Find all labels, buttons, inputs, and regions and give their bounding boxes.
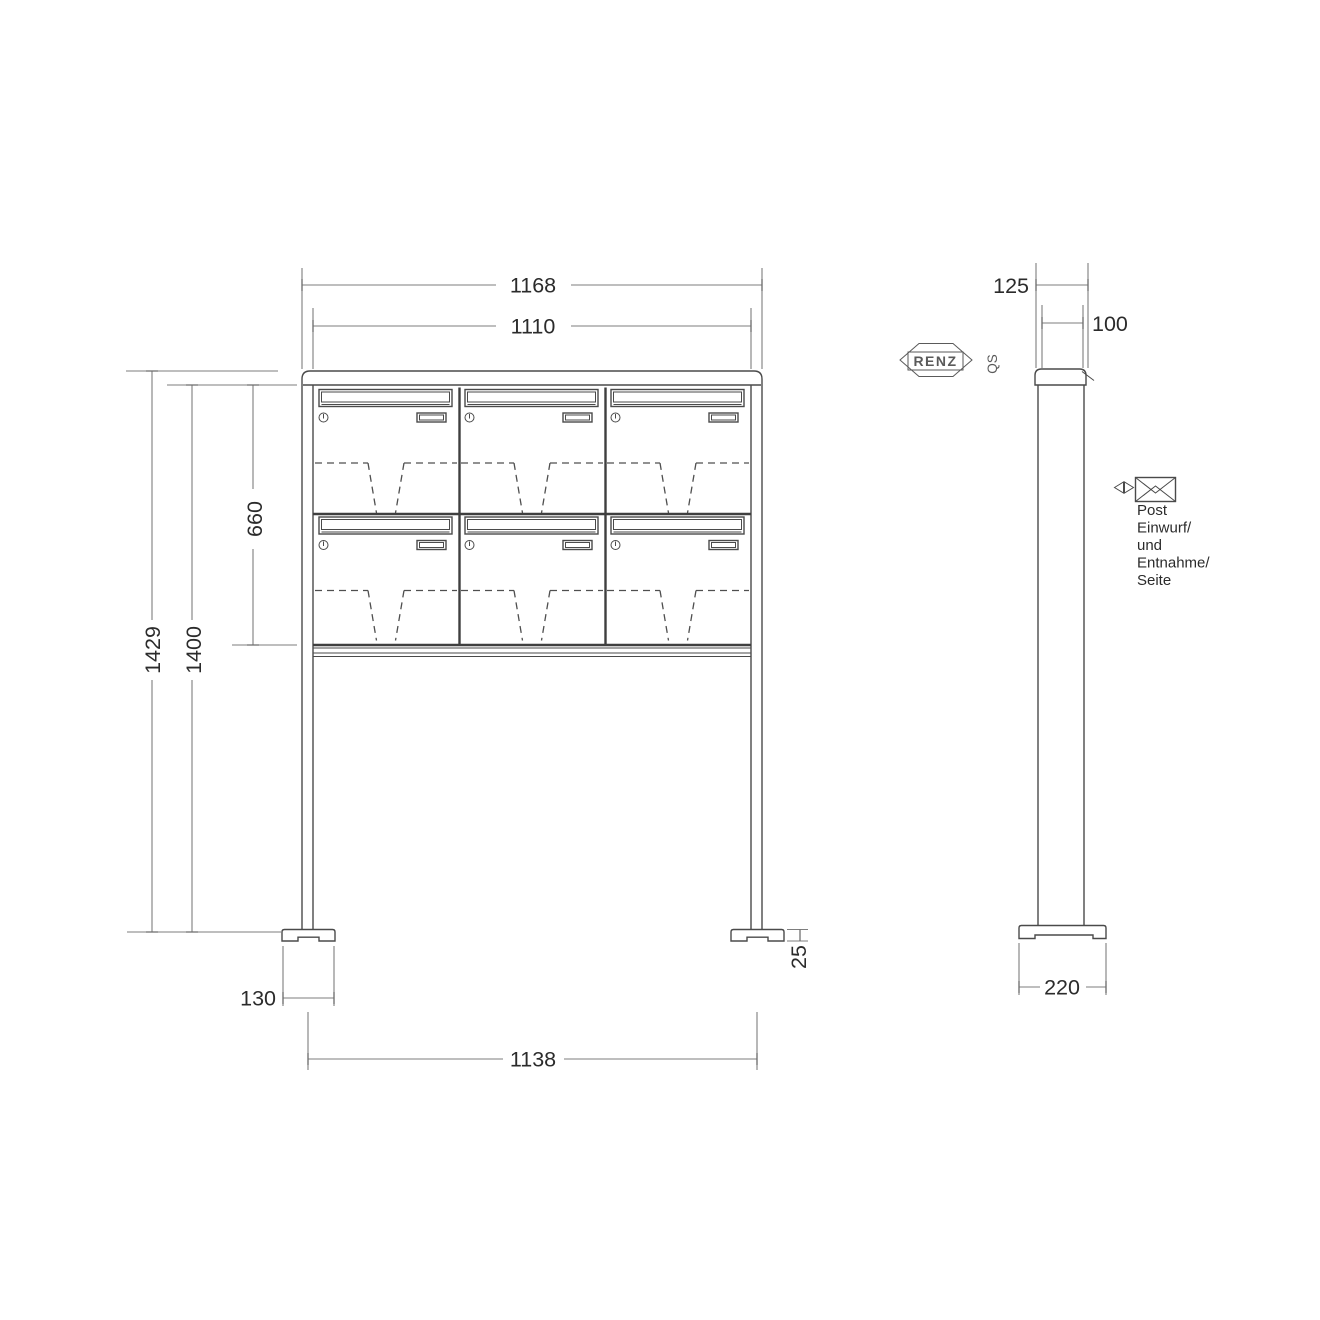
mailbox-cabinet xyxy=(313,388,751,657)
note-line-1: Post xyxy=(1137,502,1168,519)
dim-post-spacing-label: 1138 xyxy=(510,1048,556,1072)
dim-box-depth-label: 100 xyxy=(1092,312,1128,336)
renz-logo-text: RENZ xyxy=(913,353,957,369)
stand-frame xyxy=(302,371,762,930)
dim-foot-height-label: 25 xyxy=(787,945,811,969)
post-side xyxy=(1038,385,1084,926)
left-right-arrows-icon xyxy=(1115,482,1134,493)
dimension-cabinet-height: 660 xyxy=(243,385,267,645)
qs-label: QS xyxy=(985,354,1000,374)
mailbox-unit xyxy=(461,390,603,514)
envelope-icon xyxy=(1136,478,1176,502)
dim-frame-depth-label: 125 xyxy=(993,274,1029,298)
dim-stand-height-label: 1400 xyxy=(182,626,206,674)
note-line-5: Seite xyxy=(1137,572,1171,589)
mailbox-unit xyxy=(315,390,457,514)
brand-mark: RENZ QS xyxy=(900,344,1000,377)
note-line-3: und xyxy=(1137,537,1162,554)
post-cap-side xyxy=(1035,369,1094,385)
mailbox-unit xyxy=(315,517,457,641)
dimension-foot-width: 130 xyxy=(240,946,334,1011)
mailbox-unit xyxy=(607,517,749,641)
dim-total-height-label: 1429 xyxy=(141,626,165,674)
side-view: 125 100 220 xyxy=(993,263,1128,1000)
dim-cabinet-height-label: 660 xyxy=(243,501,267,537)
dim-inner-width-label: 1110 xyxy=(511,315,556,339)
dim-foot-width-label: 130 xyxy=(240,987,276,1011)
dim-outer-width-label: 1168 xyxy=(510,274,556,298)
note-line-4: Entnahme/ xyxy=(1137,555,1210,572)
foot-plate-side xyxy=(1019,926,1106,939)
technical-drawing-page: 1168 1110 1429 xyxy=(0,0,1320,1320)
dimension-frame-depth: 125 xyxy=(993,274,1088,298)
mailbox-unit xyxy=(461,517,603,641)
dimension-total-height: 1429 xyxy=(141,371,165,932)
dim-foot-depth-label: 220 xyxy=(1044,976,1080,1000)
dimension-inner-width: 1110 xyxy=(313,308,751,369)
dimension-foot-height: 25 xyxy=(787,930,811,969)
post-slot-annotation: Post Einwurf/ und Entnahme/ Seite xyxy=(1115,478,1211,590)
front-view: 1168 1110 1429 xyxy=(126,268,811,1072)
mailbox-unit xyxy=(607,390,749,514)
foot-plates-front xyxy=(282,930,784,942)
post-slot-note-text: Post Einwurf/ und Entnahme/ Seite xyxy=(1137,502,1210,589)
mailbox-technical-drawing: 1168 1110 1429 xyxy=(0,0,1320,1320)
dimension-foot-depth: 220 xyxy=(1019,943,1106,1000)
dimension-stand-height: 1400 xyxy=(182,385,206,932)
dimension-box-depth: 100 xyxy=(1042,312,1128,336)
note-line-2: Einwurf/ xyxy=(1137,520,1192,537)
dimension-post-spacing: 1138 xyxy=(308,1012,757,1072)
